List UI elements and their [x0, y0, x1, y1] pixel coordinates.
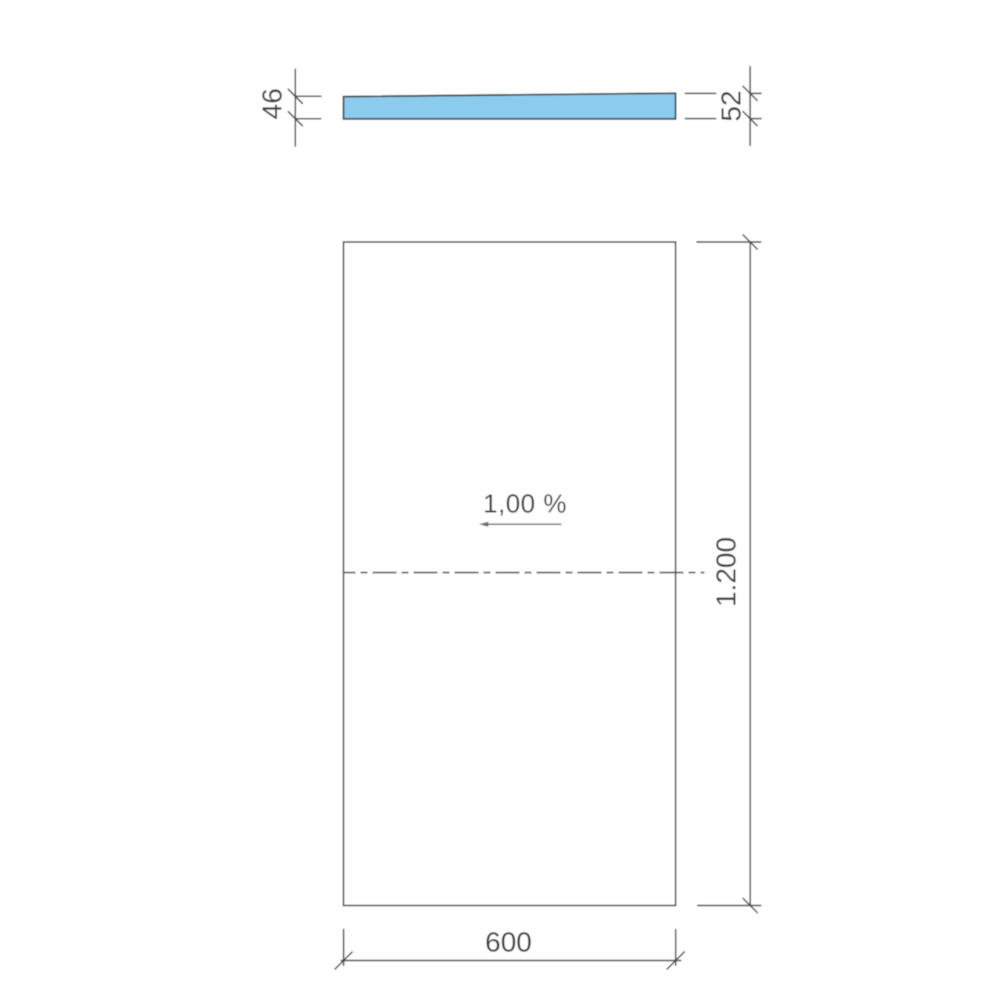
svg-text:1.200: 1.200	[710, 537, 741, 607]
svg-text:1,00 %: 1,00 %	[483, 489, 567, 519]
svg-text:600: 600	[485, 927, 532, 958]
svg-text:46: 46	[256, 88, 287, 119]
svg-text:52: 52	[716, 90, 747, 121]
